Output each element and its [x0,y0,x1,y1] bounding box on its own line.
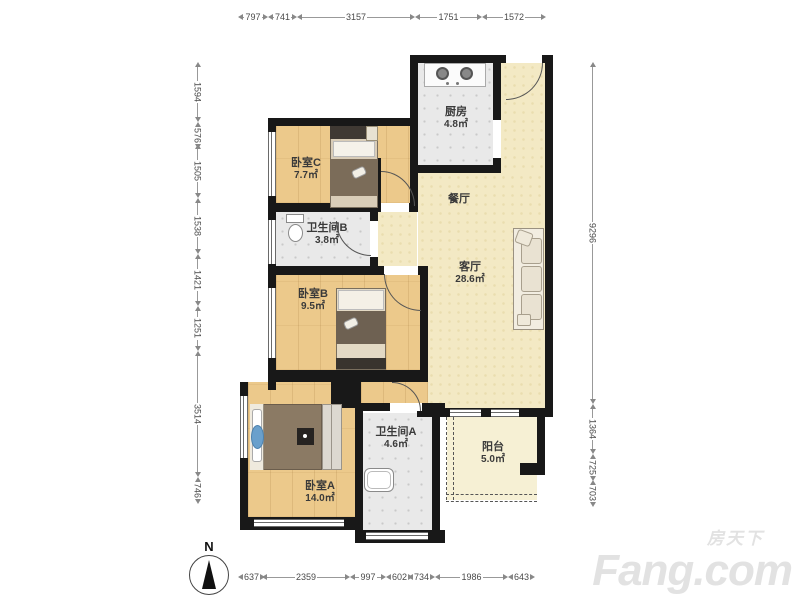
balcony-slider-right [491,409,519,417]
room-label-bedroomB: 卧室B9.5㎡ [298,288,328,313]
wall-balcony-right [537,415,545,470]
stove-knob-icon [446,82,449,85]
entry-door-opening [506,55,542,63]
stove-knob-icon [456,82,459,85]
dim-bottom-7: 643 [508,571,531,583]
dim-bottom-3: 997 [350,571,386,583]
sofa-pillow [517,314,531,326]
fang-watermark: 房天下 Fang.com [592,530,792,594]
bedB-blanket [336,311,386,344]
dim-left-8: 746 [191,477,204,504]
wall-bedroomC-top [268,118,418,126]
dim-bottom-5: 734 [408,571,435,583]
bedroomB-window [268,288,276,358]
dim-left-3: 1505 [191,144,204,198]
corridor-floor [378,212,417,266]
bathroomB-door-opening [370,221,378,257]
bedA-wardrobe [322,404,342,470]
dim-left-2: 576 [191,122,204,144]
dim-bottom-1: 637 [238,571,262,583]
dim-right-2: 1364 [586,404,599,454]
dim-left-4: 1538 [191,198,204,254]
wall-right-main [545,55,553,412]
north-label: N [188,540,230,554]
bathroomB-window [268,220,276,264]
tv-dot-icon [303,434,307,438]
room-label-dining: 餐厅 [448,193,470,206]
fang-watermark-logo: Fang.com [592,548,792,594]
balcony-slider-left [450,409,481,417]
wall-bathroomA-left [355,408,363,530]
toilet-icon [286,214,304,223]
stove-counter [424,63,486,87]
dim-top-1: 797 [238,11,268,23]
dim-left-7: 3514 [191,351,204,477]
balcony-dashed-bottom [446,494,537,502]
bedC-nightstand [366,126,378,141]
dim-left-6: 1251 [191,306,204,351]
bedroomA-side-window [240,396,248,458]
bedC-pillows [333,141,375,157]
toilet-icon [288,224,303,242]
bathroomA-window [366,532,428,540]
dim-top-2: 741 [268,11,297,23]
dim-bottom-6: 1986 [435,571,508,583]
dim-bottom-2: 2359 [262,571,350,583]
dim-top-4: 1751 [415,11,482,23]
pier-balcony-corner [520,463,545,475]
bathtub-inner [367,471,391,489]
room-label-bedroomA: 卧室A14.0㎡ [305,480,335,505]
dim-top-3: 3157 [297,11,415,23]
floorplan-canvas: 厨房4.8㎡ 卧室C7.7㎡ 卫生间B3.8㎡ 餐厅 客厅28.6㎡ 卧室B9.… [0,0,800,600]
wall-bathroomA-right [432,413,440,530]
balcony-dashed-left [446,417,454,500]
dim-right-1: 9296 [586,62,599,404]
wall-bedroomB-right [420,266,428,382]
bedroomA-bottom-window [254,519,344,527]
bedB-bench [336,358,386,369]
room-label-bedroomC: 卧室C7.7㎡ [291,157,321,182]
wall-kitchen-left [410,55,418,212]
dim-left-5: 1421 [191,254,204,306]
dim-right-3: 725 [586,454,599,480]
bedroomC-window [268,132,276,196]
dim-right-4: 703 [586,480,599,506]
room-label-bathroomA: 卫生间A4.6㎡ [376,426,417,451]
wardrobe-divider [331,404,332,470]
compass-circle [189,555,229,595]
wall-bedroomB-bottom [268,370,428,382]
north-compass: N [188,540,230,595]
sofa-cushion [521,266,542,292]
dim-left-1: 1594 [191,62,204,122]
stove-burner-icon [460,67,473,80]
room-label-kitchen: 厨房4.8㎡ [444,106,468,131]
dim-top-5: 1572 [482,11,546,23]
bedA-blue-throw [251,425,264,449]
kitchen-door-opening [493,120,501,158]
dim-bottom-4: 602 [386,571,408,583]
bedB-pillows [338,290,384,310]
room-label-balcony: 阳台5.0㎡ [481,441,505,466]
room-label-bathroomB: 卫生间B3.8㎡ [307,222,348,247]
wall-living-bottom [417,408,553,417]
wall-kitchen-bottom [410,165,501,173]
north-arrow-icon [202,560,216,589]
room-label-living: 客厅28.6㎡ [455,261,484,286]
stove-burner-icon [436,67,449,80]
